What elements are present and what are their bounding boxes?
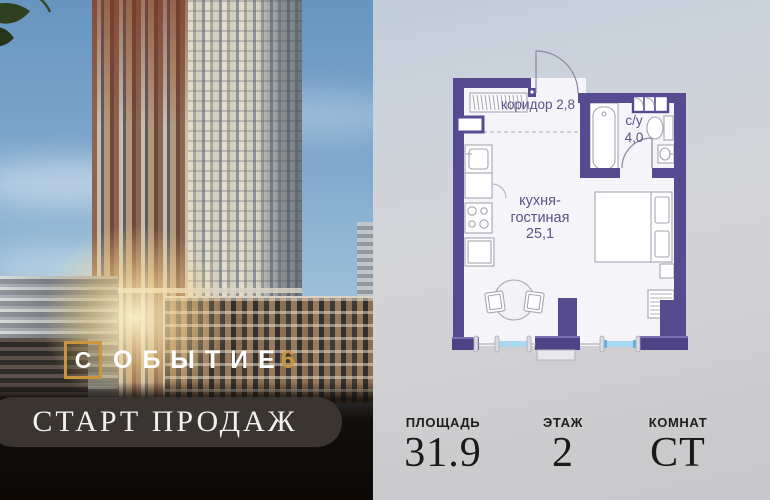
logo-number: 6 [281,346,295,375]
listing-card: С ОБЫТИЕ 6 СТАРТ ПРОДАЖ [0,0,770,500]
door-hinge [530,90,533,93]
bed-icon [595,192,672,262]
sales-start-text: СТАРТ ПРОДАЖ [32,405,297,439]
sales-start-banner: СТАРТ ПРОДАЖ [0,397,342,447]
leaf-decoration [0,0,68,58]
bathroom-sink-icon [658,145,674,163]
logo-wordmark: ОБЫТИЕ [113,346,285,375]
floorplan: коридор 2,8 с/у 4,0 кухня-гостиная 25,1 [452,50,688,362]
building-photo: С ОБЫТИЕ 6 СТАРТ ПРОДАЖ [0,0,373,500]
stat-area-value: 31.9 [404,431,482,475]
logo-letter-box: С [64,341,102,379]
kitchen-sink-icon [465,145,492,173]
shaft-box [457,117,483,132]
apartment-info-panel: коридор 2,8 с/у 4,0 кухня-гостиная 25,1 … [373,0,770,500]
nightstand-icon [660,264,674,278]
project-logo: С ОБЫТИЕ 6 [64,341,295,379]
stat-rooms-value: СТ [649,431,708,475]
bathroom-shelf-icon [633,96,668,112]
stat-rooms: КОМНАТ СТ [649,414,708,475]
stove-icon [465,203,492,233]
room-label-bathroom: с/у 4,0 [604,112,664,146]
stat-area-label: ПЛОЩАДЬ [404,414,482,431]
stat-floor: ЭТАЖ 2 [543,414,583,475]
logo-boxed-letter: С [75,347,92,374]
stat-area: ПЛОЩАДЬ 31.9 [404,414,482,475]
stat-floor-value: 2 [543,431,583,475]
stat-rooms-label: КОМНАТ [649,414,708,431]
balcony-threshold [537,350,575,360]
fridge-icon [465,238,494,266]
stat-floor-label: ЭТАЖ [543,414,583,431]
room-label-corridor: коридор 2,8 [480,96,596,113]
room-label-kitchen-living: кухня-гостиная 25,1 [491,193,589,243]
